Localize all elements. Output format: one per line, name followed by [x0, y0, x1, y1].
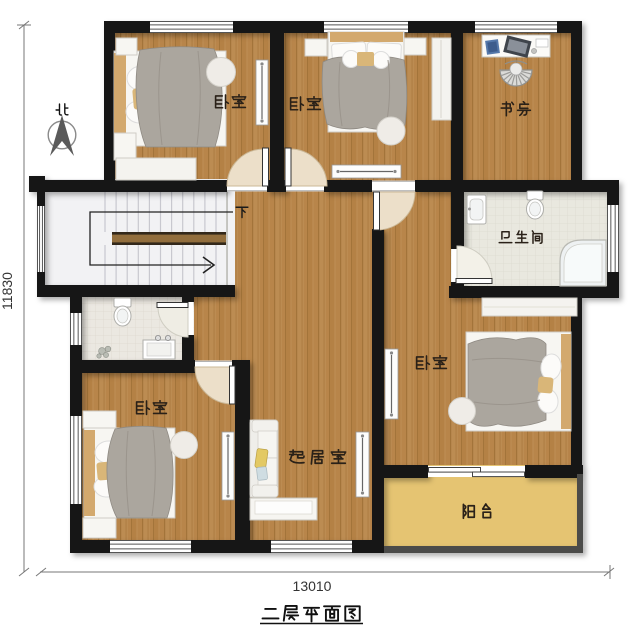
svg-text:11830: 11830	[0, 272, 15, 310]
svg-text:13010: 13010	[293, 578, 332, 594]
